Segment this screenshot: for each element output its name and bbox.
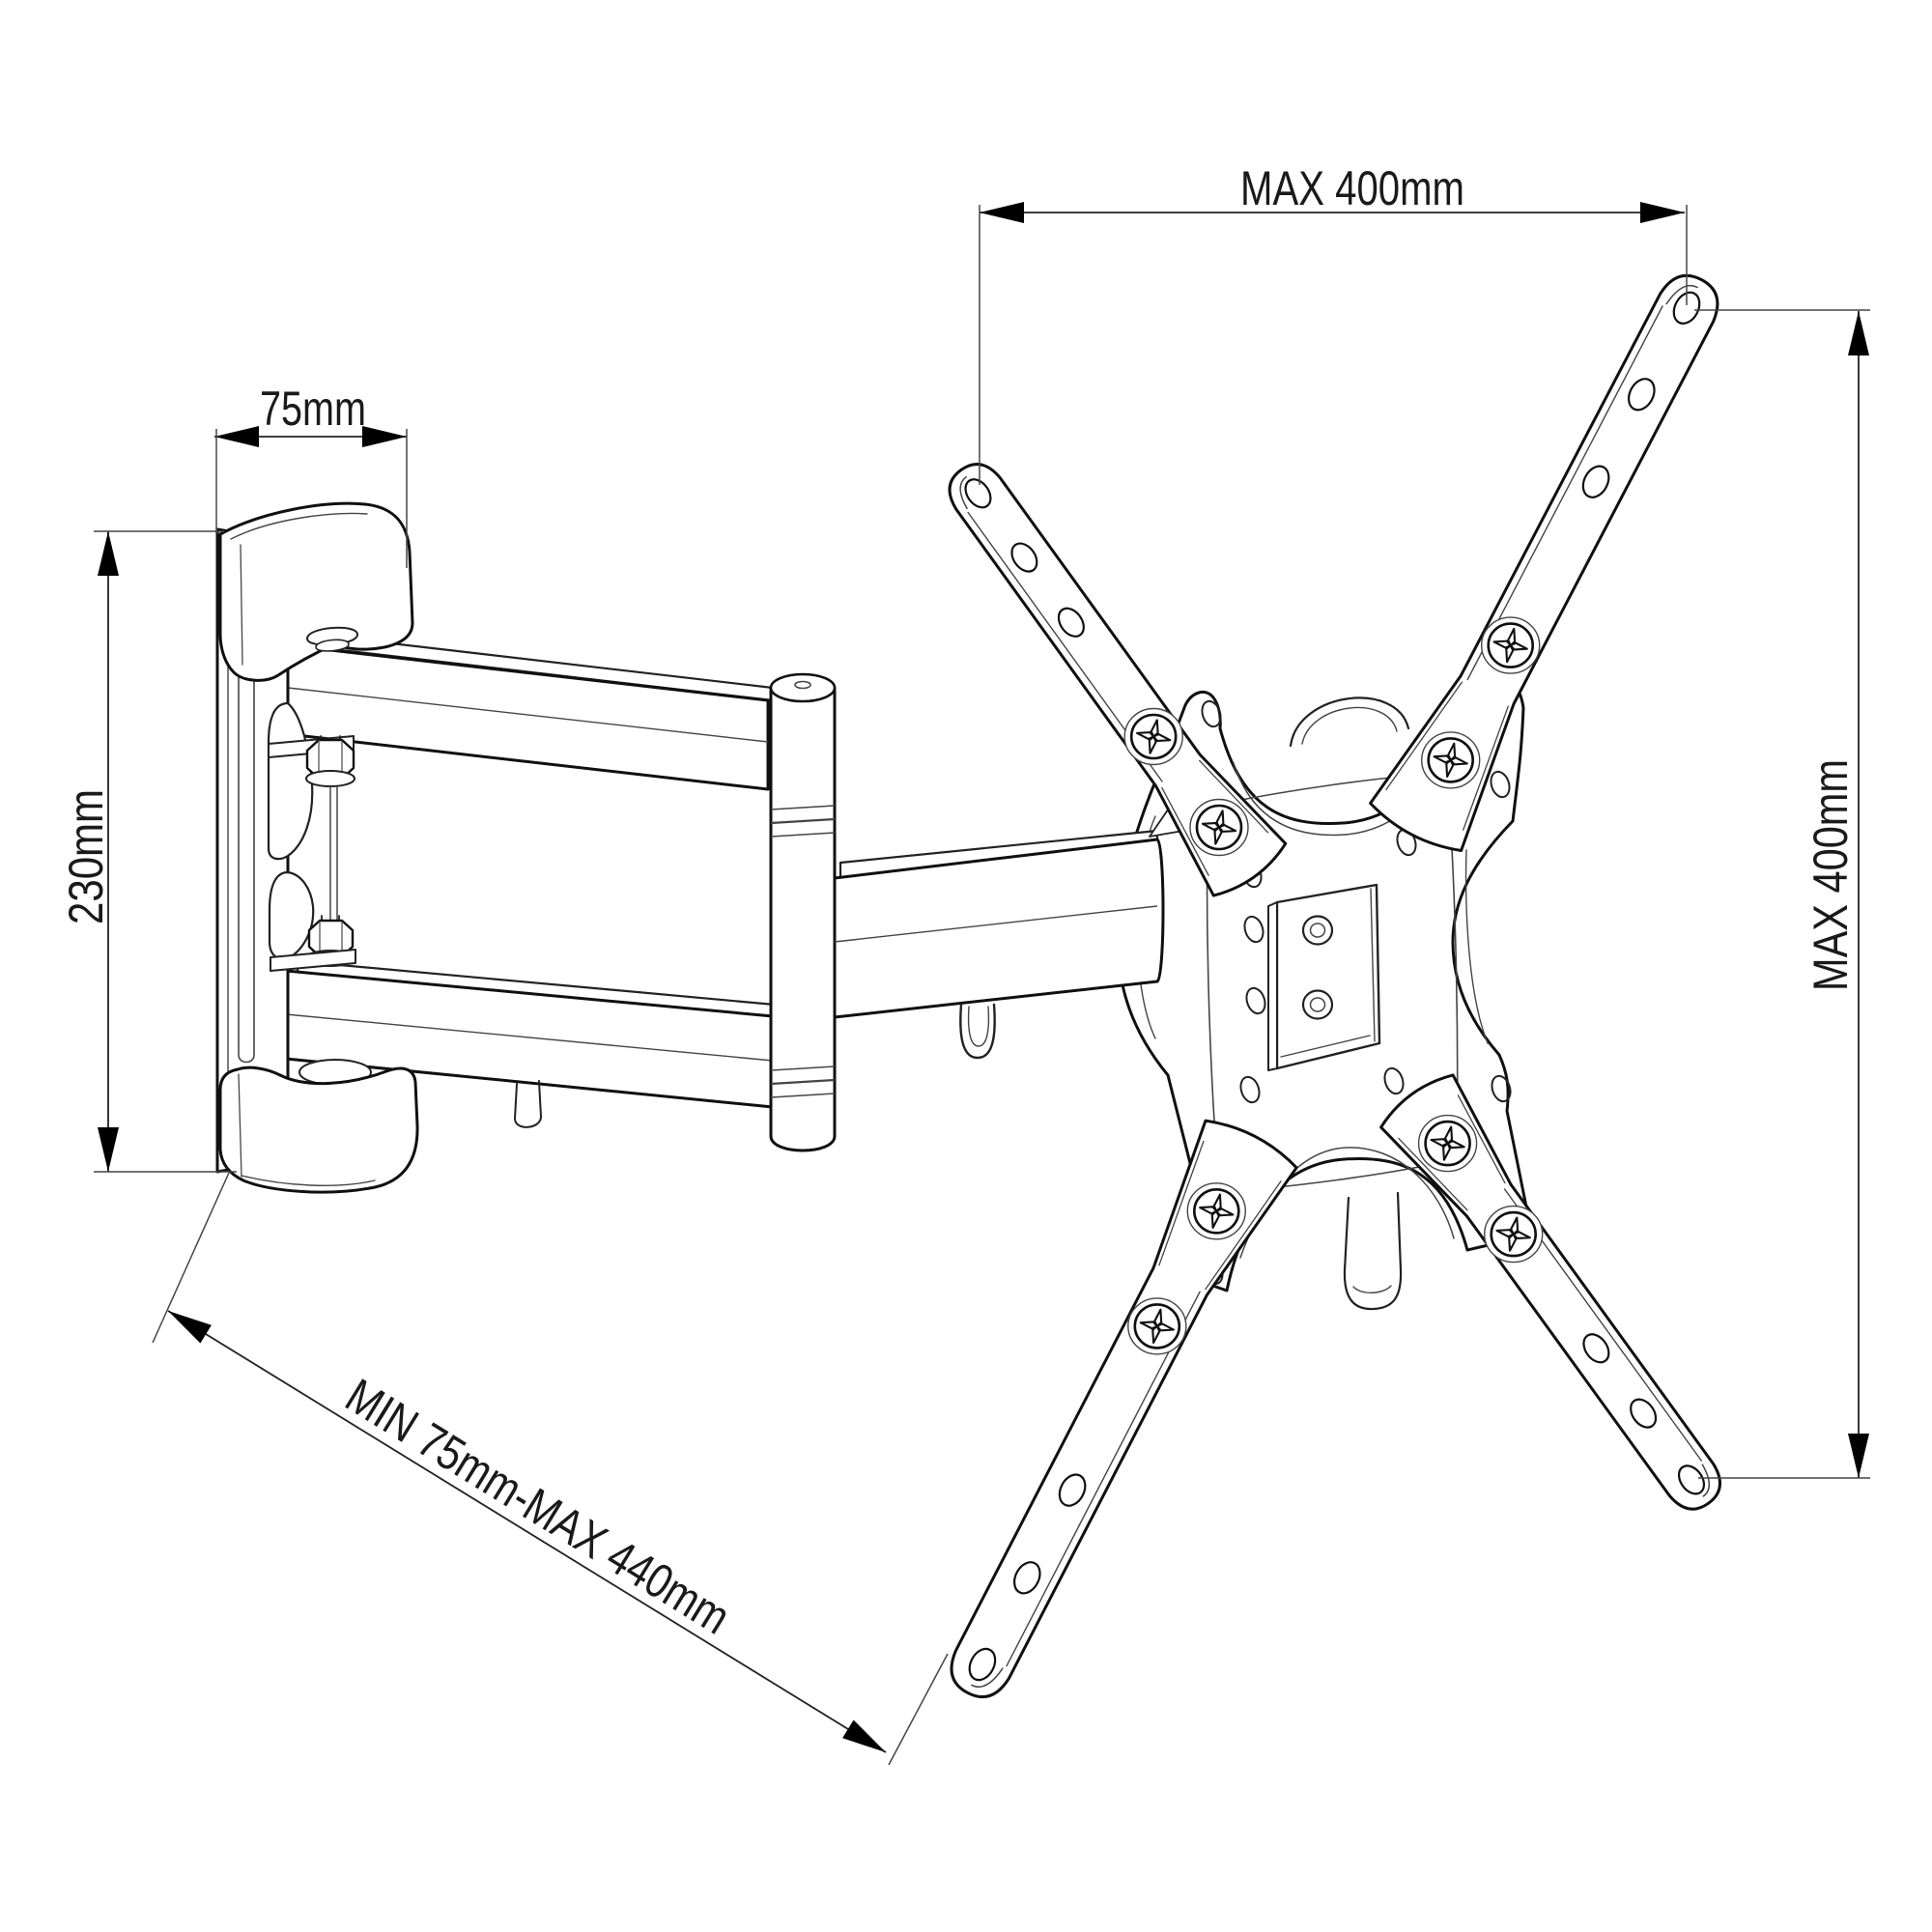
svg-text:MAX 400mm: MAX 400mm bbox=[1804, 759, 1858, 991]
svg-text:75mm: 75mm bbox=[260, 382, 366, 436]
svg-text:230mm: 230mm bbox=[59, 789, 113, 924]
svg-text:MAX 400mm: MAX 400mm bbox=[1240, 161, 1464, 215]
